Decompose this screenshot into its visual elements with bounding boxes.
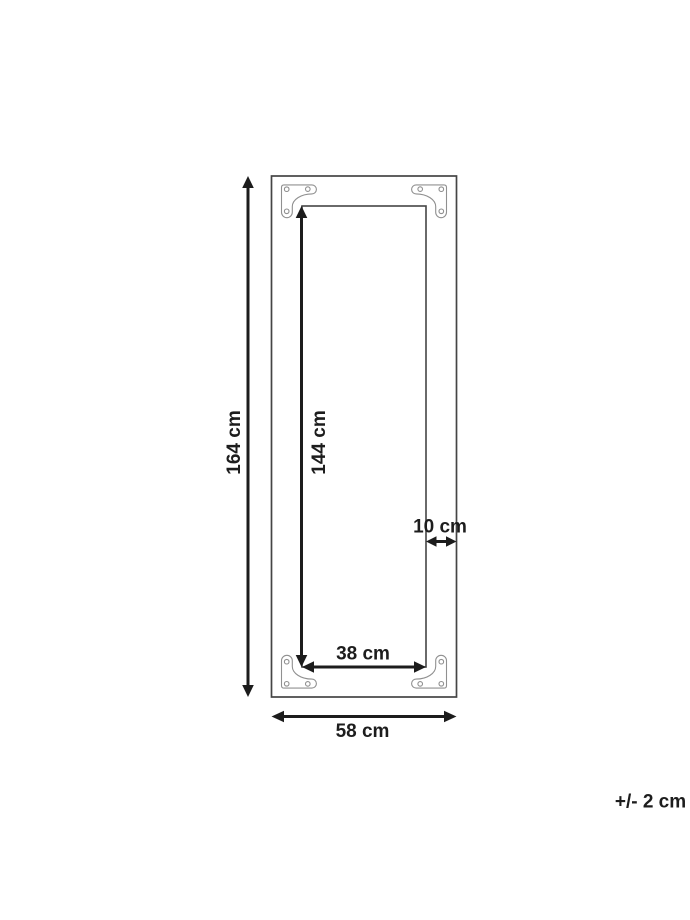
svg-text:144 cm: 144 cm: [309, 410, 330, 474]
svg-text:38 cm: 38 cm: [336, 644, 390, 665]
svg-text:10 cm: 10 cm: [413, 516, 467, 537]
svg-text:+/- 2 cm: +/- 2 cm: [615, 792, 686, 813]
svg-text:164 cm: 164 cm: [224, 410, 245, 474]
svg-text:58 cm: 58 cm: [336, 721, 390, 742]
